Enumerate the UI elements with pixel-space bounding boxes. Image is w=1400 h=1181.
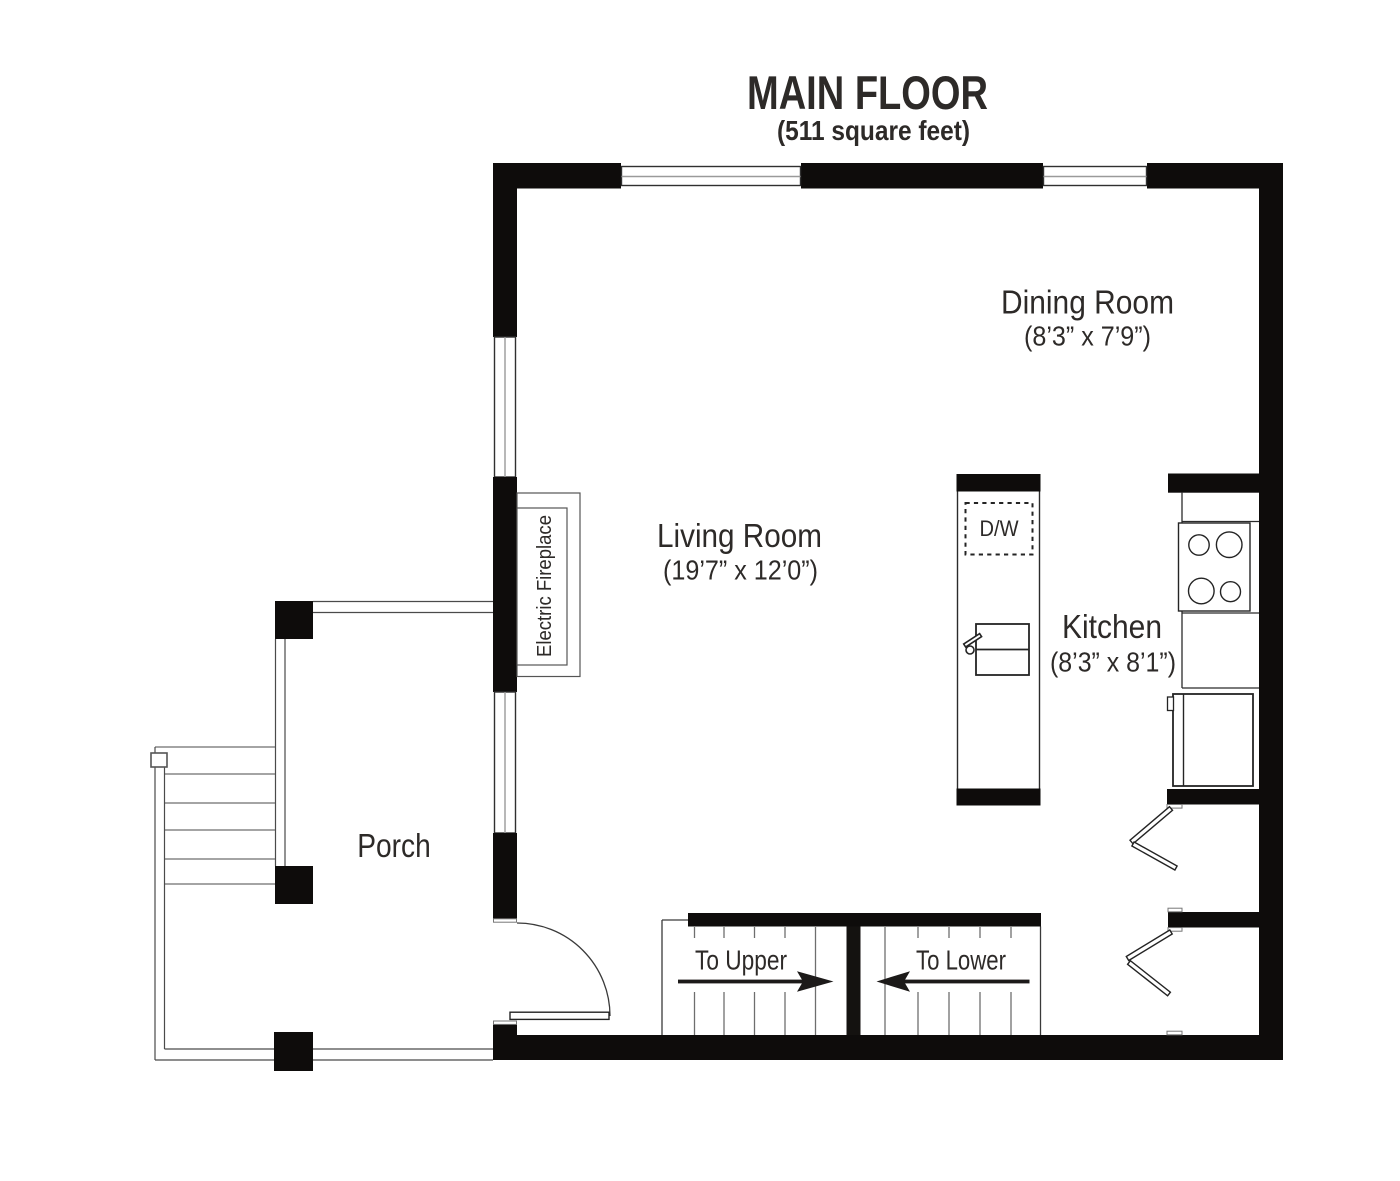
svg-text:Porch: Porch	[357, 827, 431, 864]
svg-text:Electric Fireplace: Electric Fireplace	[534, 515, 556, 657]
svg-text:Dining Room: Dining Room	[1001, 284, 1174, 321]
svg-text:(8’3” x 8’1”): (8’3” x 8’1”)	[1050, 647, 1176, 678]
svg-text:(511 square feet): (511 square feet)	[777, 115, 970, 146]
svg-text:To Lower: To Lower	[916, 945, 1006, 976]
svg-text:To Upper: To Upper	[695, 945, 787, 976]
svg-text:(19’7” x 12’0”): (19’7” x 12’0”)	[663, 555, 818, 586]
svg-text:MAIN FLOOR: MAIN FLOOR	[747, 66, 988, 119]
svg-text:D/W: D/W	[980, 516, 1019, 541]
svg-text:Kitchen: Kitchen	[1062, 608, 1162, 645]
svg-text:Living Room: Living Room	[657, 517, 822, 554]
svg-text:(8’3” x 7’9”): (8’3” x 7’9”)	[1024, 321, 1151, 352]
